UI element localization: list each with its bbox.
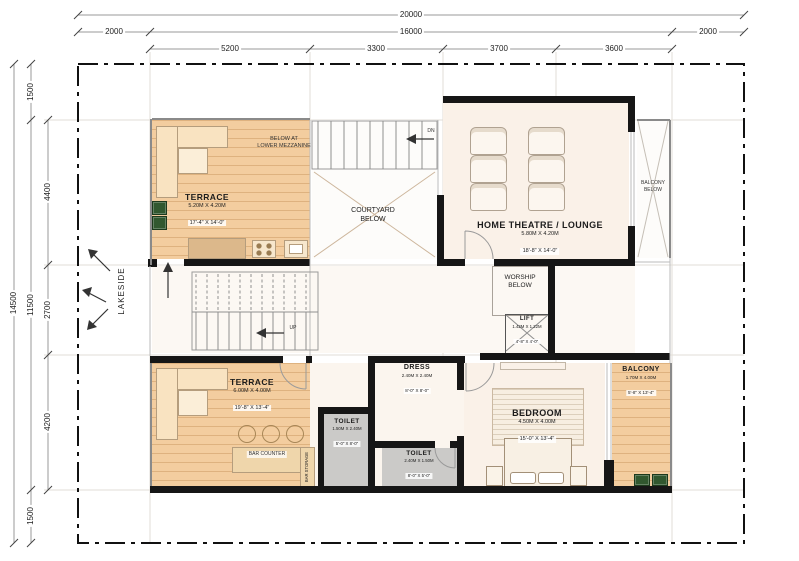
room-size-metric: 6.00M X 4.00M	[230, 388, 274, 395]
room-size-imperial: 19'-8" X 13'-4"	[233, 405, 272, 412]
stair-courtyard-zone	[312, 120, 437, 259]
dim-top-left-margin: 2000	[103, 28, 125, 36]
room-name: BEDROOM	[512, 408, 562, 419]
dim-left-bottom-margin: 1500	[27, 505, 35, 527]
room-size-imperial: 4'-8" X 4'-0"	[514, 339, 540, 344]
wall	[150, 486, 672, 493]
room-label-lift: LIFT 1.42M X 1.22M 4'-8" X 4'-0"	[512, 316, 541, 349]
room-size-imperial: 17'-4" X 14'-0"	[188, 220, 227, 227]
room-label-bedroom: BEDROOM 4.50M X 4.00M 15'-0" X 13'-4"	[512, 408, 562, 446]
wall	[443, 96, 635, 103]
room-size-metric: 5.80M X 4.20M	[477, 231, 603, 238]
dim-top-right-margin: 2000	[697, 28, 719, 36]
wall	[318, 407, 324, 486]
dim-top-overall: 20000	[398, 11, 424, 19]
label-stair-up: UP	[290, 325, 297, 332]
room-name: TOILET	[332, 418, 361, 426]
room-size-metric: 1.70M X 4.00M	[622, 375, 659, 381]
floor-plan-canvas: 20000 2000 16000 2000 5200 3300 3700 360…	[0, 0, 799, 561]
label-balcony-below: BALCONY BELOW	[641, 180, 665, 193]
wall	[443, 259, 465, 266]
sink-basin	[289, 244, 303, 254]
room-name: LIFT	[512, 316, 541, 324]
wall	[457, 356, 464, 390]
room-size-imperial: 5'-0" X 8'-0"	[334, 441, 360, 446]
wall	[450, 441, 457, 448]
dim-top-seg-4: 3600	[603, 45, 625, 53]
dim-top-building: 16000	[398, 28, 424, 36]
recliner-seat	[528, 183, 565, 211]
recliner-seat	[470, 127, 507, 155]
wall	[368, 356, 465, 363]
wall	[480, 353, 670, 360]
room-name: BALCONY	[622, 366, 659, 375]
wall	[368, 363, 375, 486]
dim-left-seg-3: 4200	[44, 411, 52, 433]
wall	[457, 436, 464, 486]
pillow	[538, 472, 564, 484]
room-size-metric: 1.42M X 1.22M	[512, 324, 541, 329]
wall	[604, 460, 614, 486]
room-name: TOILET	[404, 450, 433, 458]
planter-box	[152, 216, 167, 230]
planter-box	[652, 474, 668, 486]
label-worship-below: WORSHIP BELOW	[504, 274, 535, 291]
label-stair-dn: DN	[427, 128, 434, 135]
bedside-table	[570, 466, 587, 486]
room-name: HOME THEATRE / LOUNGE	[477, 220, 603, 231]
wall	[148, 259, 157, 267]
label-courtyard-below: COURTYARD BELOW	[351, 206, 395, 224]
room-size-imperial: 18'-8" X 14'-0"	[521, 248, 560, 255]
room-label-toilet-left: TOILET 1.50M X 2.40M 5'-0" X 8'-0"	[332, 418, 361, 451]
room-size-metric: 2.40M X 2.40M	[402, 373, 433, 379]
planter-box	[634, 474, 650, 486]
wardrobe	[500, 362, 566, 370]
planter-box	[152, 201, 167, 215]
room-name: TERRACE	[185, 192, 229, 203]
room-size-imperial: 8'-0" X 5'-0"	[406, 473, 432, 478]
room-label-dress: DRESS 2.40M X 2.40M 8'-0" X 8'-0"	[402, 364, 433, 398]
dim-left-building: 11500	[27, 292, 35, 318]
label-bar-counter: BAR COUNTER	[247, 451, 287, 458]
wall	[437, 195, 444, 266]
wall	[306, 356, 312, 363]
room-size-metric: 4.50M X 4.00M	[512, 419, 562, 426]
wall	[548, 259, 555, 360]
room-size-metric: 2.40M X 1.50M	[404, 458, 433, 463]
recliner-seat	[528, 155, 565, 183]
room-label-balcony: BALCONY 1.70M X 4.00M 5'-8" X 13'-4"	[622, 366, 659, 400]
pillow	[510, 472, 536, 484]
wall	[494, 259, 635, 266]
room-size-imperial: 15'-0" X 13'-4"	[518, 436, 557, 443]
dim-top-seg-1: 5200	[219, 45, 241, 53]
room-size-imperial: 8'-0" X 8'-0"	[403, 388, 430, 394]
room-label-home-theatre: HOME THEATRE / LOUNGE 5.80M X 4.20M 18'-…	[477, 220, 603, 258]
wall	[318, 407, 368, 414]
room-name: DRESS	[402, 364, 433, 373]
sofa-cushion	[178, 390, 208, 416]
bar-stool	[262, 425, 280, 443]
label-bar-storage: BAR STORAGE	[305, 452, 309, 482]
bar-stool	[238, 425, 256, 443]
dim-left-seg-1: 4400	[44, 181, 52, 203]
bar-stool	[286, 425, 304, 443]
wall	[375, 441, 435, 448]
room-label-toilet-right: TOILET 2.40M X 1.50M 8'-0" X 5'-0"	[404, 450, 433, 483]
note-below-mezzanine: BELOW AT LOWER MEZZANINE	[257, 136, 310, 150]
dim-top-seg-3: 3700	[488, 45, 510, 53]
sofa-side	[156, 368, 178, 440]
room-size-metric: 1.50M X 2.40M	[332, 426, 361, 431]
room-size-metric: 5.20M X 4.20M	[185, 203, 229, 210]
stove	[252, 240, 276, 258]
room-size-imperial: 5'-8" X 13'-4"	[626, 390, 656, 396]
hall-floor	[152, 266, 635, 353]
label-lakeside: LAKESIDE	[118, 267, 126, 314]
bedside-table	[486, 466, 503, 486]
dim-left-top-margin: 1500	[27, 81, 35, 103]
wall	[150, 356, 283, 363]
dim-left-seg-2: 2700	[44, 299, 52, 321]
recliner-seat	[470, 183, 507, 211]
wall	[184, 259, 310, 266]
recliner-seat	[528, 127, 565, 155]
room-label-terrace-top: TERRACE 5.20M X 4.20M 17'-4" X 14'-0"	[185, 192, 229, 230]
sofa-side	[156, 126, 178, 198]
sofa-cushion	[178, 148, 208, 174]
dim-top-seg-2: 3300	[365, 45, 387, 53]
wall	[628, 96, 635, 132]
recliner-seat	[470, 155, 507, 183]
dim-left-overall: 14500	[10, 290, 18, 316]
bbq-counter	[188, 238, 246, 259]
room-name: TERRACE	[230, 377, 274, 388]
room-label-terrace-bottom: TERRACE 6.00M X 4.00M 19'-8" X 13'-4"	[230, 377, 274, 415]
